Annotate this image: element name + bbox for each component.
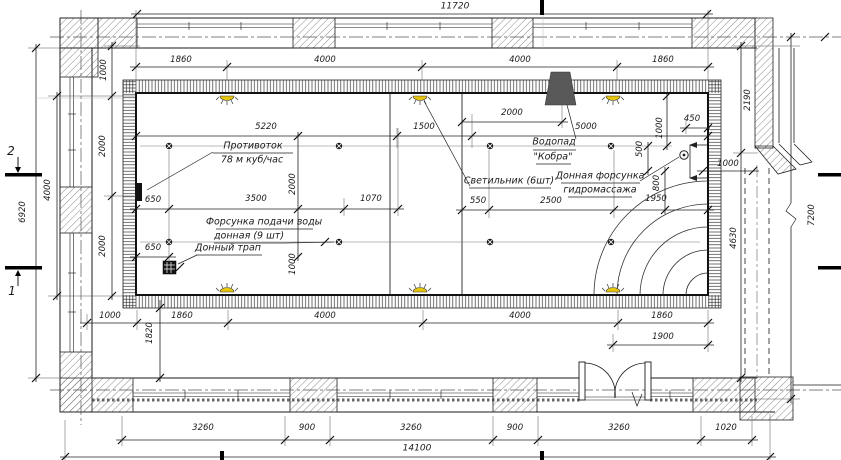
dim-left-seg-1000: 1000 <box>100 59 109 81</box>
annotation-floor-drain: Донный трап <box>195 243 261 253</box>
plan-linework <box>0 0 841 460</box>
waterfall-cobra-symbol <box>545 72 576 105</box>
dim-right-7200: 7200 <box>808 204 817 226</box>
dim-top-row-1: 4000 <box>314 56 336 65</box>
dim-right-2190: 2190 <box>744 89 753 111</box>
dim-right-v-500: 500 <box>636 141 645 157</box>
annotation-waterfall-line1: Водопад <box>532 137 575 147</box>
dim-left-seg-2000b: 2000 <box>99 235 108 257</box>
dim-right-v-1000: 1000 <box>656 117 665 139</box>
dim-bp-1000: 1000 <box>99 312 121 321</box>
dim-bp-1860b: 1860 <box>651 312 673 321</box>
dim-right-4630: 4630 <box>730 227 739 249</box>
annotation-nozzle-line2: донная (9 шт) <box>214 231 284 241</box>
dim-1950: 1950 <box>645 195 667 204</box>
dim-left-6920: 6920 <box>19 201 28 223</box>
dim-1070: 1070 <box>360 195 382 204</box>
dim-5220: 5220 <box>255 123 277 132</box>
annotation-nozzle-line1: Форсунка подачи воды <box>206 217 322 227</box>
counterflow-symbol <box>137 183 142 201</box>
section-marker-1: 1 <box>8 285 16 297</box>
dim-right-v-800: 800 <box>653 175 662 191</box>
annotation-counterflow-line2: 78 м куб/час <box>221 155 283 165</box>
dim-5000: 5000 <box>575 123 597 132</box>
dim-top-total: 11720 <box>441 3 470 12</box>
dim-pool-v-2000: 2000 <box>289 173 298 195</box>
dim-top-row-0: 1860 <box>170 56 192 65</box>
dim-pool-v-1000: 1000 <box>289 253 298 275</box>
dim-bp-4000b: 4000 <box>509 312 531 321</box>
dim-br-3260b: 3260 <box>400 424 422 433</box>
annotation-hydro-line2: гидромассажа <box>563 185 636 195</box>
dim-br-3260a: 3260 <box>192 424 214 433</box>
floor-drain-symbol <box>163 261 176 274</box>
dim-br-1020: 1020 <box>715 424 737 433</box>
dim-bottom-total: 14100 <box>403 445 432 454</box>
dim-2000-waterfall: 2000 <box>501 109 523 118</box>
dim-550: 550 <box>470 197 486 206</box>
dim-left-4000: 4000 <box>44 179 53 201</box>
dim-top-row-2: 4000 <box>509 56 531 65</box>
annotation-hydro-line1: Донная форсунка <box>556 171 645 181</box>
dim-bp-1860a: 1860 <box>171 312 193 321</box>
dim-1820: 1820 <box>146 322 155 344</box>
double-door <box>579 362 651 406</box>
dim-1500: 1500 <box>413 123 435 132</box>
dim-left-seg-2000a: 2000 <box>99 135 108 157</box>
dim-bp-4000a: 4000 <box>314 312 336 321</box>
annotation-waterfall-line2: "Кобра" <box>533 152 572 162</box>
dim-top-row-3: 1860 <box>652 56 674 65</box>
dim-br-900a: 900 <box>299 424 315 433</box>
dim-3500: 3500 <box>245 195 267 204</box>
dim-650-a: 650 <box>145 196 161 205</box>
dim-br-3260c: 3260 <box>608 424 630 433</box>
dim-650-b: 650 <box>145 244 161 253</box>
dim-450: 450 <box>684 115 700 124</box>
dim-br-900b: 900 <box>507 424 523 433</box>
dim-2500: 2500 <box>540 197 562 206</box>
annotation-counterflow-line1: Противоток <box>223 141 282 151</box>
blueprint-canvas: 11720 1860 4000 4000 1860 5220 1500 2000… <box>0 0 841 460</box>
dim-1900: 1900 <box>652 333 674 342</box>
dim-right-1000: 1000 <box>717 160 739 169</box>
section-marker-2: 2 <box>7 145 15 157</box>
annotation-light: Светильник (6шт) <box>464 176 554 186</box>
